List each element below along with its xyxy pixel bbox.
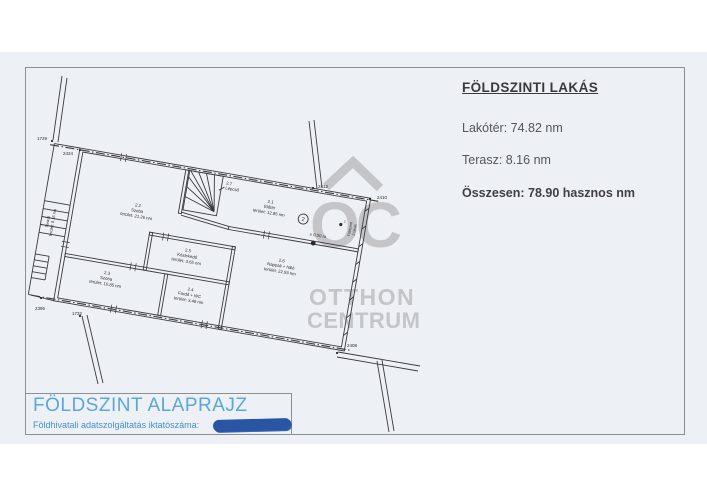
redaction-scribble <box>213 418 291 432</box>
sheet-title: FÖLDSZINT ALAPRAJZ <box>33 395 248 417</box>
living-area-line: Lakótér: 74.82 nm <box>462 121 563 135</box>
dim-label: 2395 <box>35 306 46 311</box>
staircase <box>183 171 226 217</box>
wall-side-text: Földszint 2 lakás <box>347 222 358 238</box>
point-label: 2 <box>344 220 347 224</box>
dim-label: 2410 <box>377 195 388 200</box>
room-area: terület: 3.65 nm <box>171 256 202 266</box>
dim-label: 2412 <box>318 184 329 189</box>
terrace-labels: Terasz terület: 8.16 nm <box>43 207 58 237</box>
dimension-labels: 1729 2424 2412 2410 2408 2395 1732 <box>35 136 388 348</box>
total-area-line: Összesen: 78.90 hasznos nm <box>462 186 635 200</box>
room-labels: 2.1 Előtér terület: 12.85 nm 2.2 Szoba t… <box>89 160 310 320</box>
interior-walls <box>57 152 367 350</box>
dim-label: 2408 <box>347 343 358 348</box>
opening-ticks <box>51 146 278 337</box>
outer-wall <box>54 148 371 351</box>
wall-text-line2: 2 lakás <box>352 224 358 236</box>
boundary-extension-lines <box>53 76 420 432</box>
unit-number-circle: 2 <box>301 217 305 223</box>
dim-label: 1732 <box>72 311 83 316</box>
building-plan: 2.1 Előtér terület: 12.85 nm 2.2 Szoba t… <box>24 141 379 354</box>
stair-name: Lépcső <box>225 185 240 192</box>
terrace-area: terület: 8.16 nm <box>48 208 58 237</box>
dim-label: 2424 <box>63 151 74 156</box>
registry-number-label: Földhivatali adatszolgáltatás iktatószám… <box>33 420 199 430</box>
title-block: FÖLDSZINT ALAPRAJZ Földhivatali adatszol… <box>25 393 292 434</box>
inner-wall <box>58 152 367 347</box>
property-centerlines <box>24 145 378 351</box>
dim-label: 1729 <box>37 136 48 141</box>
info-title: FÖLDSZINTI LAKÁS <box>462 80 598 95</box>
terrace-area-line: Terasz: 8.16 nm <box>462 153 551 167</box>
level-marker: 2 ± 0.00 m 2 <box>294 212 346 251</box>
level-text: ± 0.00 m <box>309 231 327 239</box>
scanned-floorplan-sheet: OC OTTHON CENTRUM <box>0 0 707 500</box>
